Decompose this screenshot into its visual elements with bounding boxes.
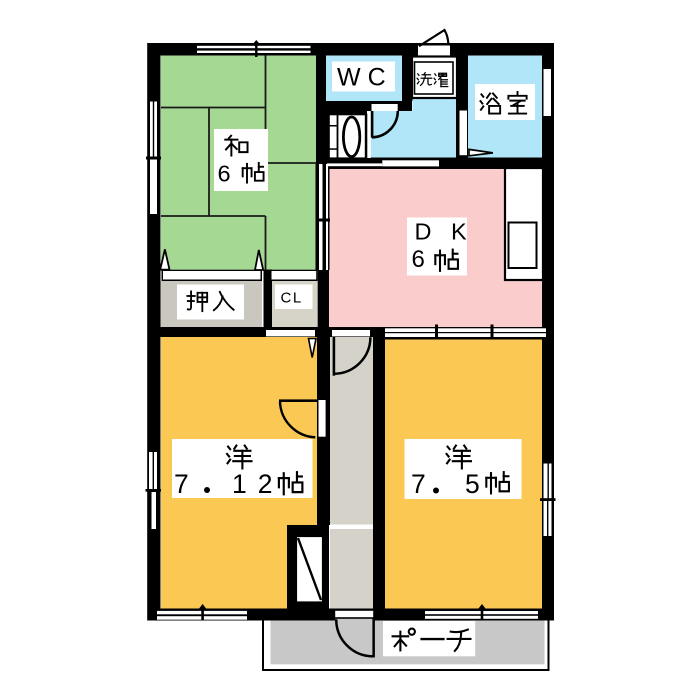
svg-text:CL: CL [281, 290, 303, 307]
svg-text:6: 6 [412, 246, 425, 273]
svg-text:7: 7 [174, 469, 189, 499]
svg-text:5: 5 [465, 469, 480, 499]
svg-text:DK: DK [415, 219, 487, 245]
svg-text:7: 7 [411, 469, 426, 499]
svg-text:12: 12 [232, 469, 283, 499]
svg-text:WC: WC [337, 64, 393, 92]
svg-text:6: 6 [218, 161, 231, 187]
